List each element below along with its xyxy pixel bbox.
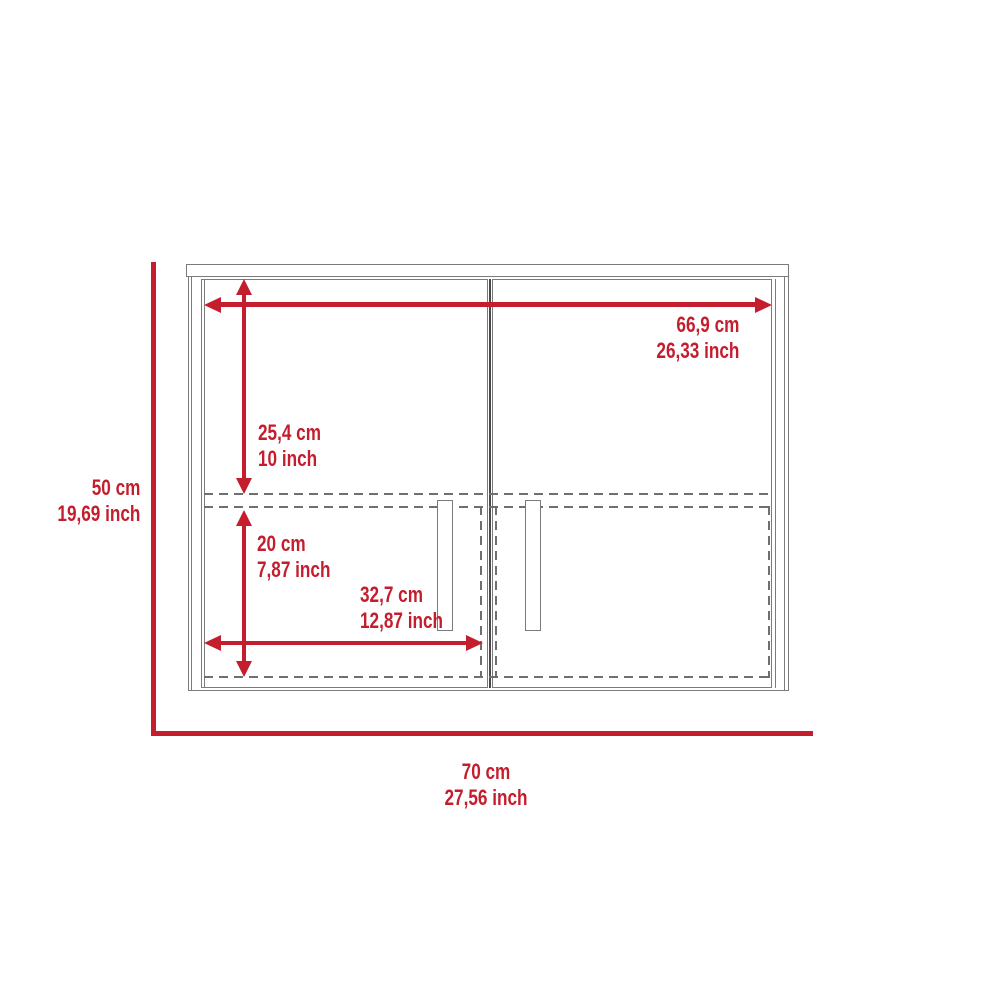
label-overall-height-inch: 19,69 inch xyxy=(57,501,140,527)
cabinet-right-side-panel xyxy=(784,277,789,691)
right-door-edge-line xyxy=(775,279,776,688)
height-guide-line xyxy=(151,262,156,736)
door-swing-dashed-left xyxy=(480,506,482,678)
shelf-dashed-line-upper xyxy=(204,493,771,495)
door-swing-dashed-center xyxy=(495,506,497,678)
label-upper-height: 25,4 cm 10 inch xyxy=(258,420,321,472)
label-top-width-inch: 26,33 inch xyxy=(656,338,739,364)
label-half-width: 32,7 cm 12,87 inch xyxy=(360,582,443,634)
label-top-width: 66,9 cm 26,33 inch xyxy=(656,312,739,364)
label-lower-height-cm: 20 cm xyxy=(257,531,330,557)
cabinet-dimension-diagram: 66,9 cm 26,33 inch 25,4 cm 10 inch 20 cm… xyxy=(0,0,1000,1000)
label-overall-height-cm: 50 cm xyxy=(57,475,140,501)
right-door-handle xyxy=(525,500,541,631)
cabinet-left-side-panel xyxy=(188,277,193,691)
cabinet-top-panel xyxy=(186,264,789,277)
label-upper-height-inch: 10 inch xyxy=(258,446,321,472)
left-door-edge-line xyxy=(204,279,205,688)
door-swing-dashed-right xyxy=(768,506,770,678)
width-guide-line xyxy=(151,731,813,736)
label-half-width-inch: 12,87 inch xyxy=(360,608,443,634)
label-lower-height-inch: 7,87 inch xyxy=(257,557,330,583)
label-top-width-cm: 66,9 cm xyxy=(656,312,739,338)
label-overall-height: 50 cm 19,69 inch xyxy=(57,475,140,527)
shelf-dashed-line-lower xyxy=(204,506,771,508)
label-upper-height-cm: 25,4 cm xyxy=(258,420,321,446)
center-divider xyxy=(489,279,492,688)
bottom-dashed-line xyxy=(204,676,771,678)
label-overall-width-inch: 27,56 inch xyxy=(408,785,564,811)
label-lower-height: 20 cm 7,87 inch xyxy=(257,531,330,583)
cabinet-bottom-edge xyxy=(188,690,789,691)
label-overall-width: 70 cm 27,56 inch xyxy=(408,759,564,811)
label-overall-width-cm: 70 cm xyxy=(408,759,564,785)
label-half-width-cm: 32,7 cm xyxy=(360,582,443,608)
